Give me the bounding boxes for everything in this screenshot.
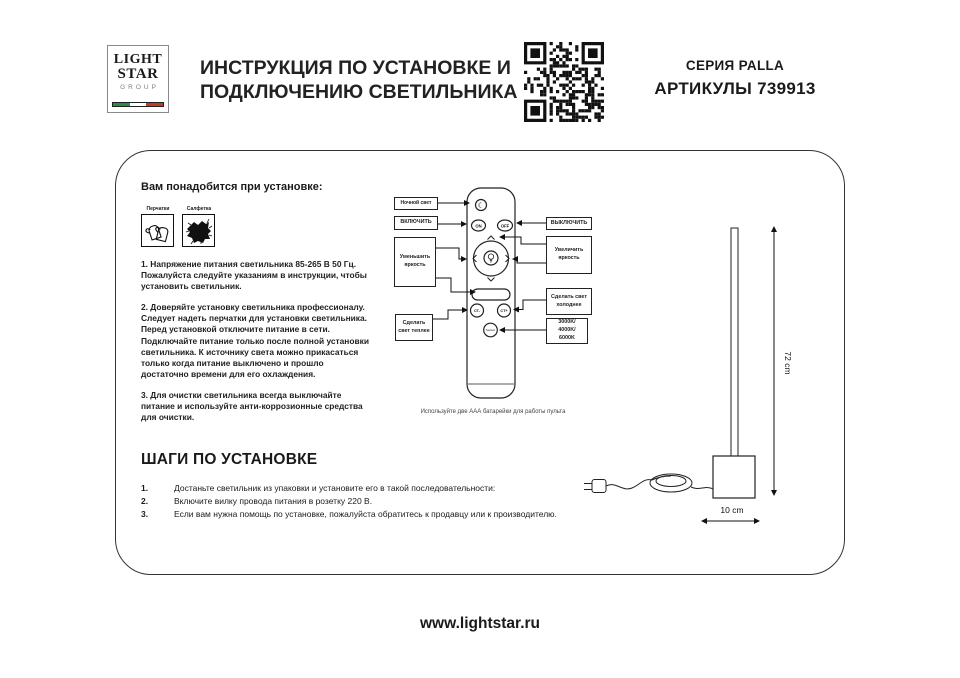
tool-gloves: Перчатки xyxy=(141,206,175,247)
height-dimension: 72 cm xyxy=(774,231,793,495)
logo-text: LIGHT xyxy=(108,53,168,67)
instruction-panel: ☾ ON OFF CT- CT+ Section xyxy=(115,150,845,575)
gloves-icon xyxy=(141,214,174,247)
night-light-icon: ☾ xyxy=(478,201,485,210)
remote-label-night-light: Ночной свет xyxy=(394,197,438,210)
website-url: www.lightstar.ru xyxy=(0,615,960,633)
remote-label-color-temperatures: 3000K/ 4000K/ 6000K xyxy=(546,318,588,344)
lightstar-logo: LIGHT STAR GROUP xyxy=(107,45,169,113)
napkin-icon xyxy=(182,214,215,247)
step-number: 1. xyxy=(141,482,174,495)
step-text: Если вам нужна помощь по установке, пожа… xyxy=(174,508,611,521)
power-cord xyxy=(606,474,713,492)
remote-label-increase-brightness: Увеличить яркость xyxy=(546,236,592,274)
remote-label-make-warmer: Сделать свет теплее xyxy=(395,314,433,341)
product-info: СЕРИЯ PALLA АРТИКУЛЫ 739913 xyxy=(650,58,820,99)
step-text: Включите вилку провода питания в розетку… xyxy=(174,495,611,508)
remote-control-diagram xyxy=(467,188,515,398)
page-title-line2: ПОДКЛЮЧЕНИЮ СВЕТИЛЬНИКА xyxy=(200,80,530,104)
step-row: 2. Включите вилку провода питания в розе… xyxy=(141,495,611,508)
step-row: 1. Достаньте светильник из упаковки и ус… xyxy=(141,482,611,495)
width-dimension: 10 cm xyxy=(706,505,759,521)
instruction-paragraph-3: 3. Для очистки светильника всегда выключ… xyxy=(141,390,369,423)
instruction-paragraph-1: 1. Напряжение питания светильника 85-265… xyxy=(141,259,369,292)
step-number: 3. xyxy=(141,508,174,521)
qr-code xyxy=(524,42,604,122)
remote-label-make-colder: Сделать свет холоднее xyxy=(546,288,592,315)
off-button-label: OFF xyxy=(501,223,510,228)
step-row: 3. Если вам нужна помощь по установке, п… xyxy=(141,508,611,521)
remote-label-turn-off: ВЫКЛЮЧИТЬ xyxy=(546,217,592,230)
steps-title: ШАГИ ПО УСТАНОВКЕ xyxy=(141,451,611,469)
lamp-rod xyxy=(731,228,738,456)
gloves-label: Перчатки xyxy=(141,206,175,212)
tool-napkin: Салфетка xyxy=(182,206,216,247)
installation-steps-section: ШАГИ ПО УСТАНОВКЕ 1. Достаньте светильни… xyxy=(141,451,611,521)
section-button-label: Section xyxy=(486,328,496,332)
requirements-section: Вам понадобится при установке: Перчатки xyxy=(141,181,369,433)
instruction-sheet: LIGHT STAR GROUP ИНСТРУКЦИЯ ПО УСТАНОВКЕ… xyxy=(0,0,960,678)
series-label: СЕРИЯ PALLA xyxy=(650,58,820,73)
on-button-label: ON xyxy=(475,223,481,228)
remote-label-decrease-brightness: Уменьшить яркость xyxy=(394,237,436,287)
remote-label-turn-on: ВКЛЮЧИТЬ xyxy=(394,216,438,230)
ct-plus-label: CT+ xyxy=(500,309,508,313)
articles-label: АРТИКУЛЫ 739913 xyxy=(650,79,820,99)
lamp-base xyxy=(713,456,755,498)
tools-row: Перчатки xyxy=(141,206,369,247)
page-title: ИНСТРУКЦИЯ ПО УСТАНОВКЕ И ПОДКЛЮЧЕНИЮ СВ… xyxy=(200,56,530,104)
logo-text: STAR xyxy=(108,67,168,82)
ct-minus-label: CT- xyxy=(474,309,481,313)
italian-flag-icon xyxy=(112,102,164,107)
battery-caption: Используйте две ААА батарейки для работы… xyxy=(403,409,583,415)
logo-text: GROUP xyxy=(108,84,168,91)
height-dimension-label: 72 cm xyxy=(783,351,793,374)
requirements-title: Вам понадобится при установке: xyxy=(141,181,369,193)
step-number: 2. xyxy=(141,495,174,508)
instruction-paragraph-2: 2. Доверяйте установку светильника профе… xyxy=(141,302,369,380)
width-dimension-label: 10 cm xyxy=(720,505,743,515)
step-text: Достаньте светильник из упаковки и устан… xyxy=(174,482,611,495)
page-title-line1: ИНСТРУКЦИЯ ПО УСТАНОВКЕ И xyxy=(200,56,530,80)
napkin-label: Салфетка xyxy=(182,206,216,212)
